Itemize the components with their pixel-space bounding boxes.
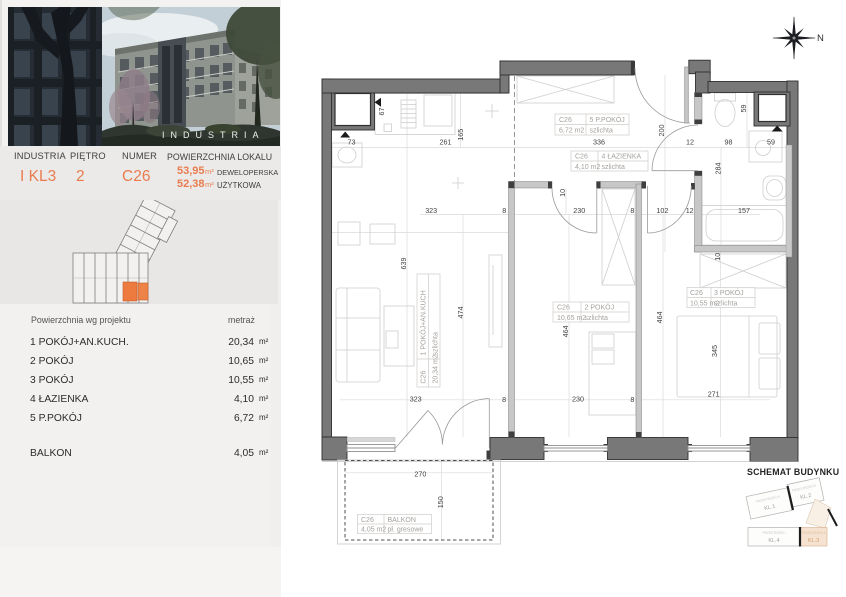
- svg-text:SCHEMAT BUDYNKU: SCHEMAT BUDYNKU: [747, 467, 839, 477]
- svg-text:10: 10: [713, 253, 722, 261]
- svg-text:5 P.POKÓJ: 5 P.POKÓJ: [590, 115, 625, 124]
- svg-text:345: 345: [710, 345, 719, 357]
- svg-text:C26: C26: [559, 117, 572, 124]
- svg-text:20,34 m2: 20,34 m2: [432, 354, 439, 383]
- svg-text:323: 323: [425, 206, 437, 215]
- svg-text:102: 102: [656, 206, 668, 215]
- svg-text:6,72 m2: 6,72 m2: [559, 128, 584, 135]
- svg-text:230: 230: [572, 395, 584, 404]
- svg-text:pł. gresowe: pł. gresowe: [388, 527, 424, 534]
- svg-text:2 POKÓJ: 2 POKÓJ: [585, 303, 615, 312]
- svg-text:464: 464: [655, 311, 664, 323]
- svg-text:BALKON: BALKON: [388, 517, 416, 524]
- svg-text:3 POKÓJ: 3 POKÓJ: [714, 288, 744, 297]
- svg-text:230: 230: [573, 206, 585, 215]
- svg-text:4,05 m2: 4,05 m2: [361, 527, 386, 534]
- svg-text:98: 98: [725, 138, 733, 147]
- svg-text:C26: C26: [421, 371, 428, 384]
- svg-text:73: 73: [348, 138, 356, 147]
- svg-text:szlichta: szlichta: [432, 332, 439, 355]
- svg-text:261: 261: [440, 138, 452, 147]
- svg-text:szlichta: szlichta: [590, 128, 613, 135]
- svg-text:C26: C26: [361, 517, 374, 524]
- svg-text:10,65 m2: 10,65 m2: [557, 315, 586, 322]
- svg-text:PRZESTRZEŃ II: PRZESTRZEŃ II: [802, 531, 826, 535]
- svg-text:szlichta: szlichta: [602, 164, 625, 171]
- svg-text:C26: C26: [690, 290, 703, 297]
- svg-text:270: 270: [414, 470, 426, 479]
- svg-text:4 ŁAZIENKA: 4 ŁAZIENKA: [602, 154, 642, 161]
- svg-text:8: 8: [502, 395, 506, 404]
- svg-text:165: 165: [456, 129, 465, 141]
- svg-text:59: 59: [767, 138, 775, 147]
- svg-text:271: 271: [708, 390, 720, 399]
- svg-text:464: 464: [561, 325, 570, 337]
- svg-text:10: 10: [558, 189, 567, 197]
- svg-text:4,10 m2: 4,10 m2: [575, 164, 600, 171]
- svg-text:PRZESTRZEŃ I: PRZESTRZEŃ I: [762, 531, 785, 535]
- svg-text:59: 59: [739, 105, 748, 113]
- svg-text:C26: C26: [557, 305, 570, 312]
- svg-text:67: 67: [377, 108, 386, 116]
- svg-text:8: 8: [630, 206, 634, 215]
- svg-text:KL.4: KL.4: [768, 538, 779, 544]
- svg-text:157: 157: [738, 206, 750, 215]
- svg-text:szlichta: szlichta: [585, 315, 608, 322]
- svg-text:12: 12: [686, 138, 694, 147]
- svg-text:639: 639: [399, 258, 408, 270]
- svg-text:C26: C26: [575, 154, 588, 161]
- svg-text:200: 200: [657, 125, 666, 137]
- svg-text:150: 150: [436, 496, 445, 508]
- svg-text:szlichta: szlichta: [714, 301, 737, 308]
- svg-text:8: 8: [502, 206, 506, 215]
- svg-text:KL.3: KL.3: [808, 538, 819, 544]
- svg-text:474: 474: [456, 307, 465, 319]
- svg-text:284: 284: [714, 163, 723, 175]
- svg-text:8: 8: [630, 395, 634, 404]
- svg-text:N: N: [817, 33, 824, 44]
- svg-text:1 POKÓJ+AN.KUCH: 1 POKÓJ+AN.KUCH: [419, 290, 428, 355]
- svg-text:323: 323: [410, 395, 422, 404]
- svg-text:336: 336: [593, 138, 605, 147]
- svg-text:12: 12: [686, 206, 694, 215]
